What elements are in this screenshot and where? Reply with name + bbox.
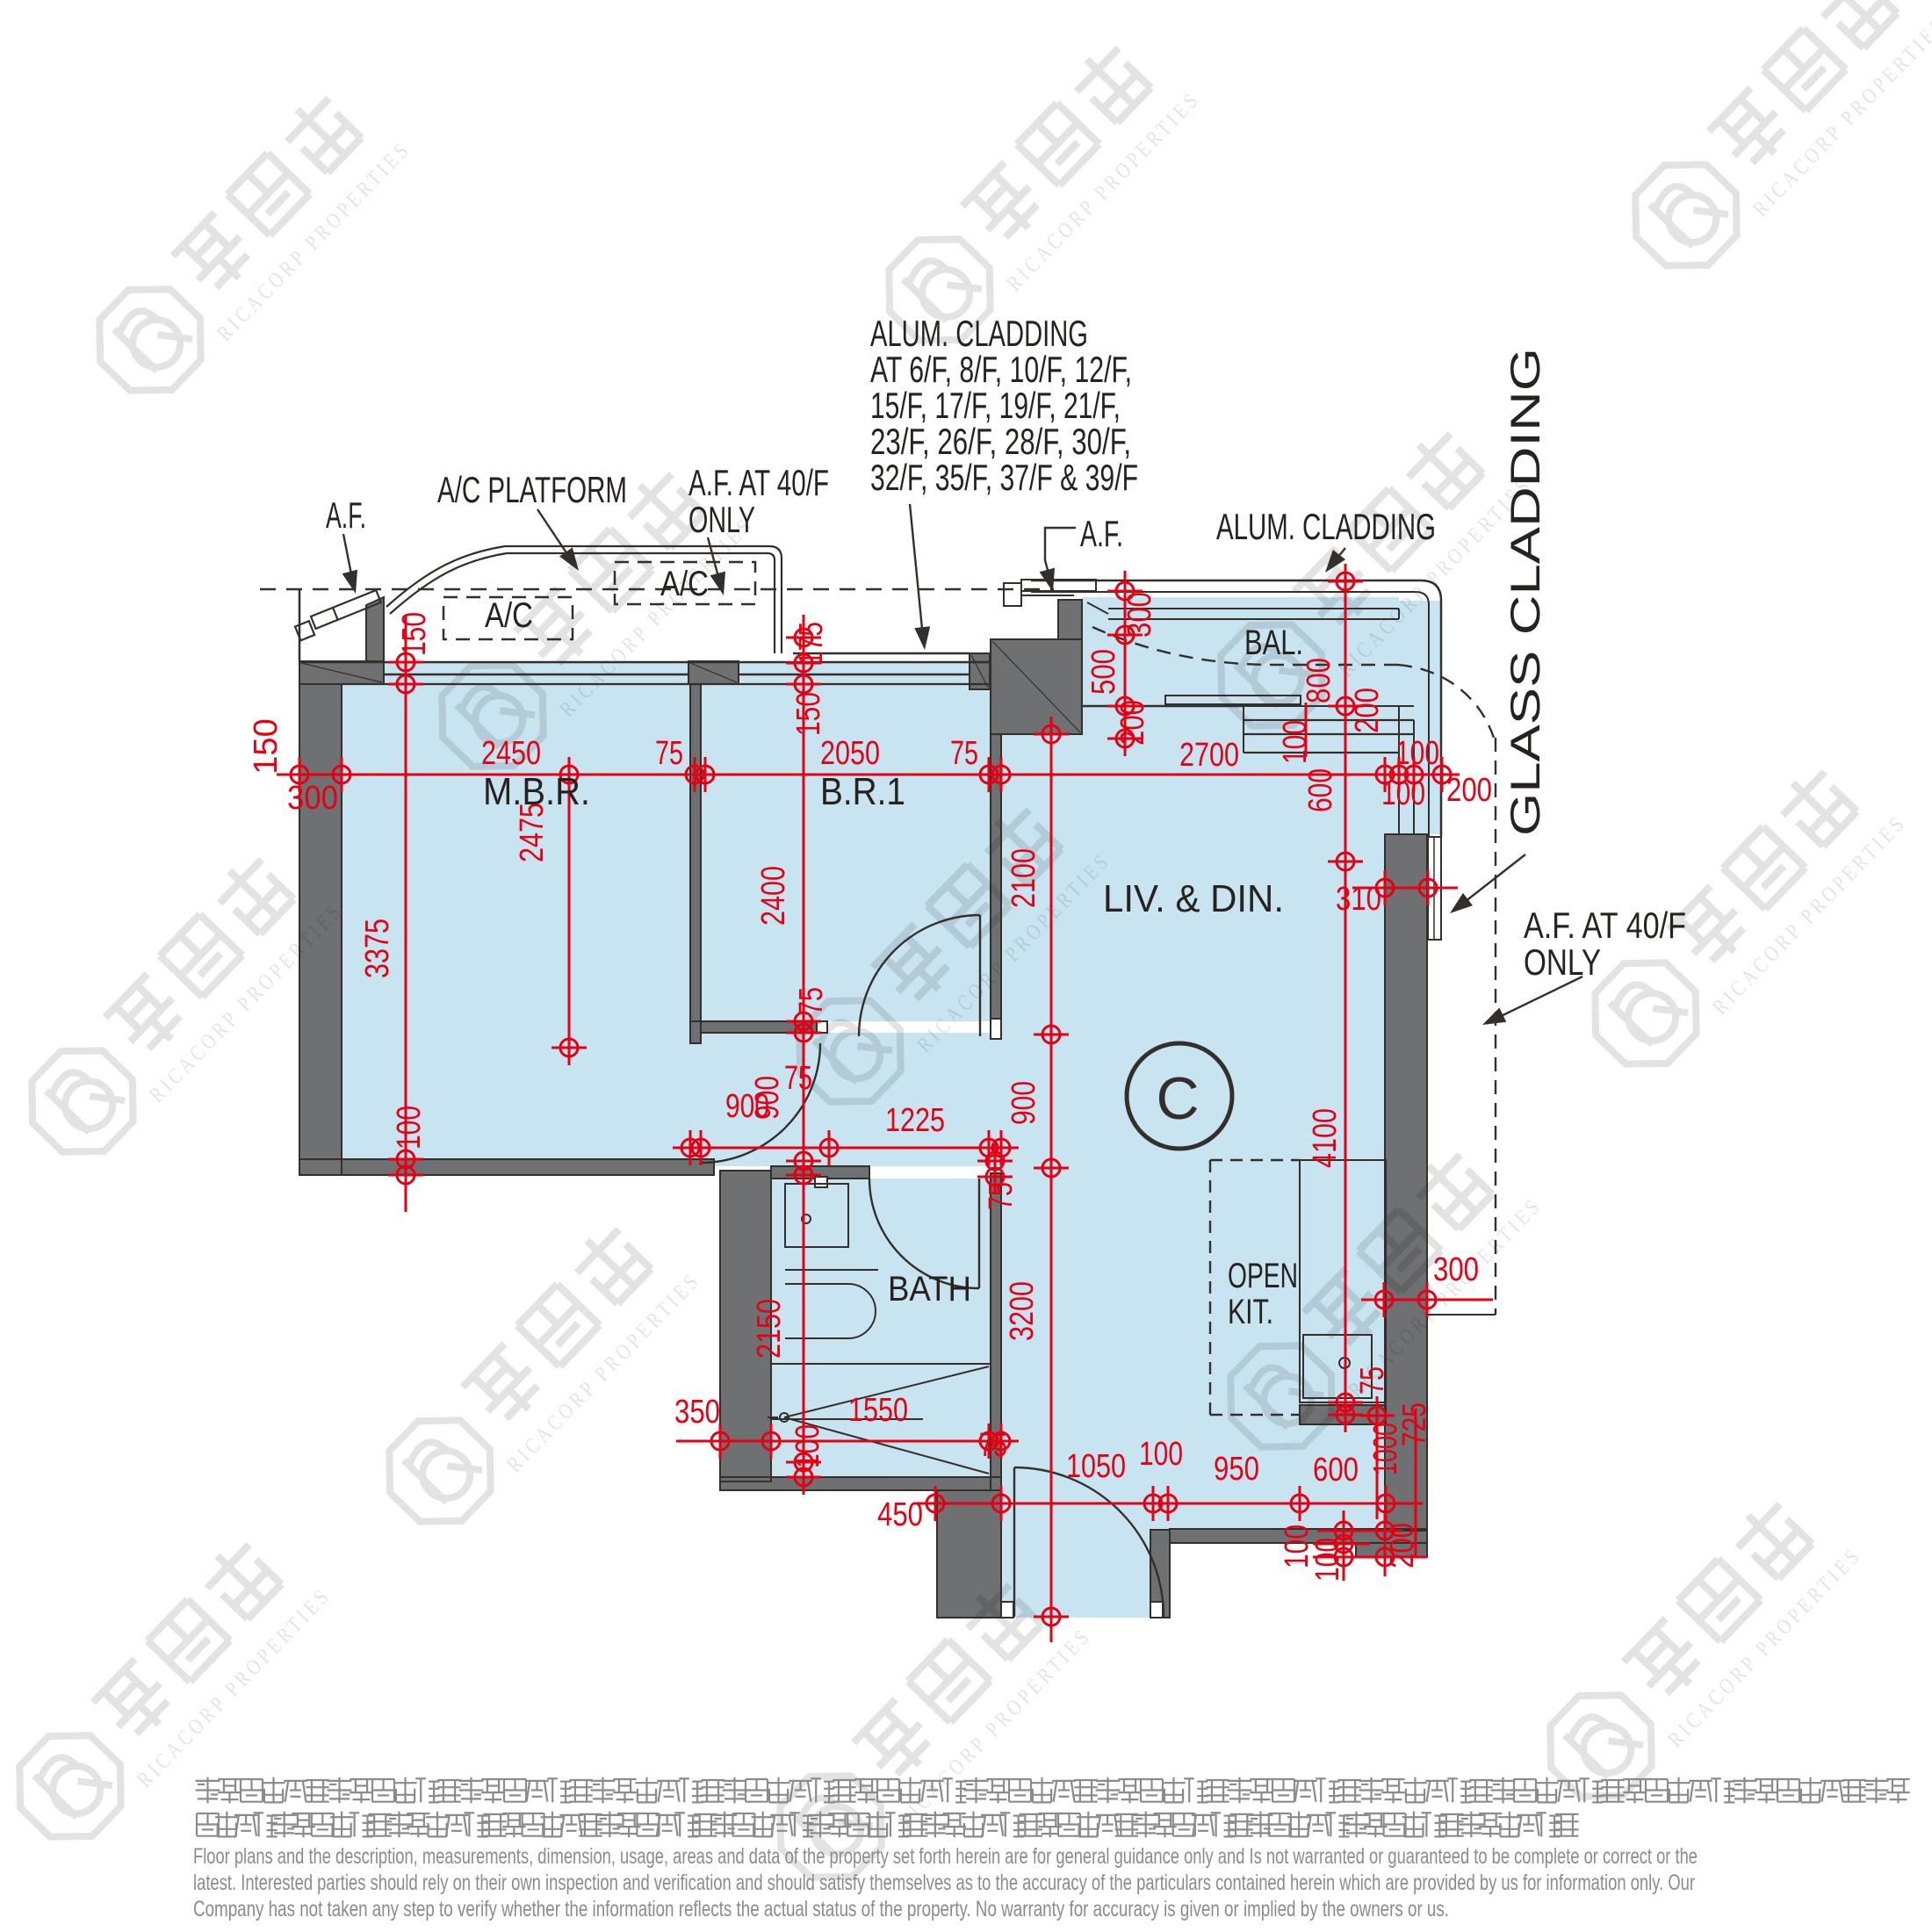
svg-text:15/F, 17/F, 19/F, 21/F,: 15/F, 17/F, 19/F, 21/F, (870, 385, 1121, 426)
svg-text:600: 600 (1313, 1452, 1359, 1489)
svg-text:ALUM. CLADDING: ALUM. CLADDING (1216, 506, 1436, 547)
svg-text:350: 350 (674, 1394, 720, 1431)
svg-text:100: 100 (1139, 1436, 1183, 1473)
svg-text:A.F.: A.F. (326, 494, 366, 536)
svg-text:75: 75 (1354, 1366, 1391, 1395)
svg-text:M.B.R.: M.B.R. (483, 770, 590, 813)
svg-text:ONLY: ONLY (688, 499, 755, 540)
svg-text:LIV. & DIN.: LIV. & DIN. (1103, 877, 1284, 920)
svg-text:2450: 2450 (481, 735, 541, 772)
svg-text:175: 175 (793, 622, 830, 666)
svg-text:300: 300 (1433, 1251, 1479, 1288)
svg-text:310: 310 (1336, 881, 1381, 918)
svg-text:2150: 2150 (751, 1299, 788, 1359)
svg-text:100: 100 (1395, 735, 1439, 772)
svg-text:75: 75 (655, 735, 683, 772)
svg-text:OPEN: OPEN (1228, 1257, 1298, 1295)
svg-text:100: 100 (1277, 720, 1314, 764)
svg-text:1000: 1000 (1367, 1423, 1404, 1475)
svg-text:300: 300 (1121, 592, 1158, 638)
svg-text:600: 600 (1302, 768, 1339, 812)
svg-text:500: 500 (1085, 649, 1122, 695)
svg-text:KIT.: KIT. (1228, 1293, 1273, 1331)
svg-text:2400: 2400 (755, 866, 792, 926)
svg-text:BATH: BATH (888, 1270, 971, 1308)
svg-text:A/C PLATFORM: A/C PLATFORM (437, 469, 627, 510)
svg-text:A.F.: A.F. (1080, 513, 1123, 554)
svg-text:75: 75 (983, 1182, 1020, 1210)
svg-text:100: 100 (1381, 775, 1425, 812)
svg-text:1225: 1225 (885, 1102, 945, 1139)
svg-text:B.R.1: B.R.1 (820, 770, 905, 813)
svg-text:450: 450 (877, 1496, 923, 1533)
svg-text:150: 150 (248, 718, 285, 774)
svg-text:3200: 3200 (1004, 1281, 1041, 1341)
svg-text:Company has not taken any step: Company has not taken any step to verify… (193, 1897, 1449, 1921)
svg-text:800: 800 (1301, 658, 1337, 703)
svg-text:BAL.: BAL. (1244, 624, 1303, 662)
svg-text:75: 75 (784, 1060, 812, 1097)
svg-text:23/F, 26/F, 28/F, 30/F,: 23/F, 26/F, 28/F, 30/F, (870, 421, 1131, 462)
svg-text:A/C: A/C (660, 565, 709, 603)
svg-text:32/F, 35/F, 37/F & 39/F: 32/F, 35/F, 37/F & 39/F (870, 457, 1138, 498)
svg-text:A.F. AT 40/F: A.F. AT 40/F (688, 462, 829, 503)
svg-text:200: 200 (1114, 700, 1151, 746)
svg-text:100: 100 (1309, 1538, 1346, 1582)
svg-text:C: C (1156, 1065, 1199, 1132)
svg-text:AT 6/F, 8/F, 10/F, 12/F,: AT 6/F, 8/F, 10/F, 12/F, (870, 349, 1132, 390)
svg-text:200: 200 (1384, 1523, 1421, 1568)
svg-text:2100: 2100 (1006, 848, 1042, 908)
svg-text:GLASS CLADDING: GLASS CLADDING (1502, 348, 1548, 836)
svg-text:ONLY: ONLY (1524, 941, 1601, 983)
svg-text:200: 200 (1349, 688, 1386, 733)
svg-text:A/C: A/C (485, 596, 533, 635)
svg-text:75: 75 (950, 735, 978, 772)
svg-text:100: 100 (789, 1424, 826, 1468)
svg-text:1050: 1050 (1066, 1448, 1126, 1485)
svg-text:75: 75 (793, 987, 830, 1015)
svg-text:4100: 4100 (1307, 1108, 1344, 1168)
svg-text:75: 75 (979, 1427, 1007, 1464)
svg-text:100: 100 (391, 1106, 428, 1150)
svg-text:3375: 3375 (359, 919, 396, 978)
svg-text:950: 950 (1214, 1451, 1259, 1488)
svg-text:Floor plans and the descriptio: Floor plans and the description, measure… (193, 1844, 1698, 1869)
svg-text:150: 150 (790, 692, 827, 736)
svg-text:300: 300 (287, 780, 338, 817)
svg-text:1550: 1550 (848, 1392, 908, 1429)
svg-text:latest. Interested parties sho: latest. Interested parties should rely o… (193, 1871, 1695, 1895)
svg-text:ALUM. CLADDING: ALUM. CLADDING (870, 313, 1088, 354)
svg-text:900: 900 (749, 1076, 786, 1120)
svg-text:150: 150 (396, 612, 433, 656)
svg-text:200: 200 (1446, 772, 1492, 809)
svg-text:2050: 2050 (820, 735, 880, 772)
svg-text:900: 900 (1006, 1081, 1042, 1125)
svg-text:2700: 2700 (1179, 737, 1239, 774)
svg-text:A.F. AT 40/F: A.F. AT 40/F (1524, 905, 1686, 946)
